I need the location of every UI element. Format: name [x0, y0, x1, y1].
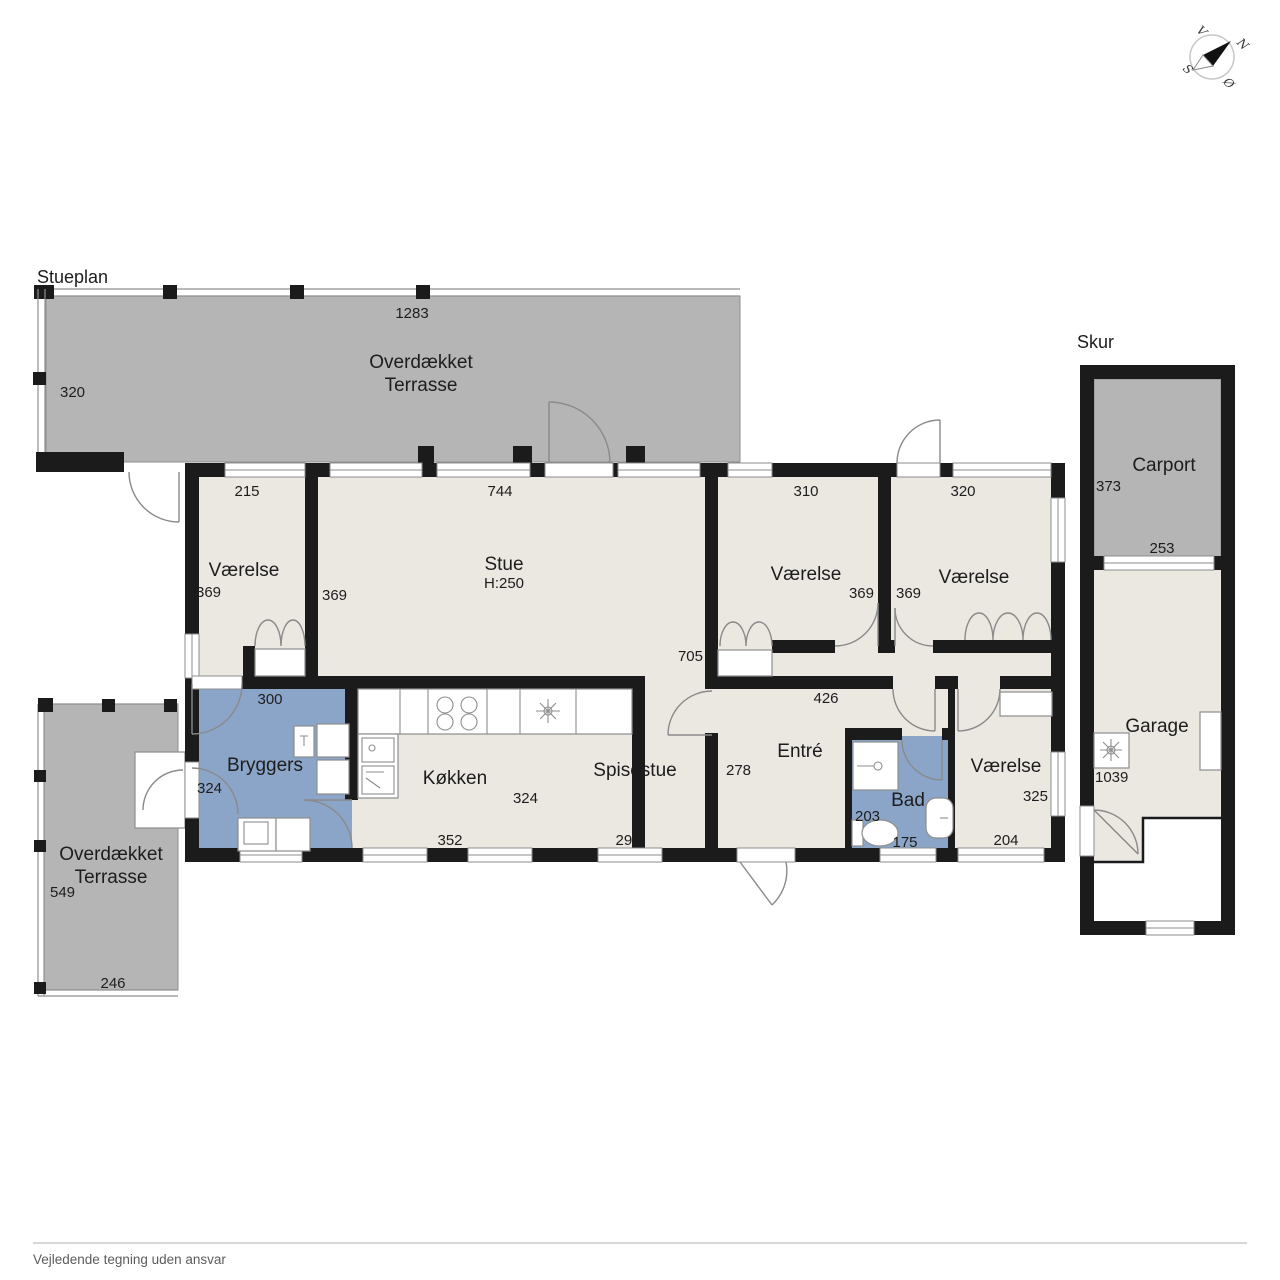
bad-label: Bad	[891, 790, 925, 811]
shower-icon	[853, 742, 898, 790]
vaerelse-nw-dim-top: 215	[234, 483, 259, 500]
vaerelse-n1-dim-top: 310	[793, 483, 818, 500]
terrace-sw-dim-bottom: 246	[100, 975, 125, 992]
bryggers-dim-top: 300	[257, 691, 282, 708]
vaerelse-n2-dim-left: 369	[896, 585, 921, 602]
entre-dim-top: 426	[813, 690, 838, 707]
vaerelse-se-dim-bottom: 204	[993, 832, 1018, 849]
closet-vaerelse-se	[1000, 692, 1052, 716]
garage-label: Garage	[1125, 716, 1188, 737]
terrace-sw-label-1: Overdækket	[59, 844, 163, 865]
vaerelse-nw-dim-left: 369	[196, 584, 221, 601]
koekken-dim-bottom: 352	[437, 832, 462, 849]
terrace-porch-recess	[135, 752, 185, 828]
bryggers-label: Bryggers	[227, 755, 303, 776]
outbuilding-skur: Carport 373 253 Garage 1039	[1080, 365, 1235, 935]
spisestue-label: Spisestue	[593, 760, 676, 781]
carport-dim-left: 373	[1096, 478, 1121, 495]
terrace-sw: Overdækket Terrasse 549 246	[34, 698, 185, 996]
stue-dim-depth: 705	[678, 648, 703, 665]
stue-label: Stue	[484, 554, 523, 575]
terrace-top-dim-top: 1283	[395, 305, 428, 322]
vaerelse-n2-dim-top: 320	[950, 483, 975, 500]
worktop-icon	[276, 818, 310, 851]
entre-label: Entré	[777, 741, 822, 762]
floorplan-drawing: 1283 320 Overdækket Terrasse Overdækket …	[0, 0, 1280, 1280]
spisestue-dim-right: 278	[726, 762, 751, 779]
koekken-label: Køkken	[423, 768, 487, 789]
stue-dim-left: 369	[322, 587, 347, 604]
terrace-top-label-2: Terrasse	[385, 375, 458, 396]
vaerelse-se-dim-right: 325	[1023, 788, 1048, 805]
stue-ceiling-height: H:250	[484, 575, 524, 592]
outbuilding-title: Skur	[1077, 332, 1114, 352]
compass-s: S	[1180, 61, 1196, 77]
vaerelse-nw-label: Værelse	[209, 560, 280, 581]
carport-dim-bottom: 253	[1149, 540, 1174, 557]
main-house: Værelse 215 369 Stue H:250 744 369 705 V…	[185, 402, 1065, 905]
footer-disclaimer: Vejledende tegning uden ansvar	[33, 1252, 226, 1267]
floorplan-page: 1283 320 Overdækket Terrasse Overdækket …	[0, 0, 1280, 1280]
garage-open-area	[1143, 818, 1221, 921]
dryer-icon	[317, 760, 349, 794]
vaerelse-n1-label: Værelse	[771, 564, 842, 585]
bad-dim-bottom: 175	[892, 834, 917, 851]
garage-fan-icon	[1094, 733, 1129, 768]
vaerelse-n2-label: Værelse	[939, 567, 1010, 588]
compass-rose: N Ø S V	[1180, 23, 1252, 92]
garage-dim-left: 1039	[1095, 769, 1128, 786]
washer-icon	[317, 724, 349, 757]
koekken-dim-right: 324	[513, 790, 538, 807]
bryggers-dim-left: 324	[197, 780, 222, 797]
terrace-sw-label-2: Terrasse	[75, 867, 148, 888]
bathroom-sink-icon	[926, 798, 953, 838]
compass-n: N	[1233, 35, 1251, 53]
vaerelse-n1-dim-right: 369	[849, 585, 874, 602]
stue-dim-top: 744	[487, 483, 512, 500]
terrace-top-label-1: Overdækket	[369, 352, 473, 373]
bad-dim-left: 203	[855, 808, 880, 825]
terrace-sw-dim-left: 549	[50, 884, 75, 901]
vaerelse-se-label: Værelse	[971, 756, 1042, 777]
plan-title: Stueplan	[37, 267, 108, 287]
terrace-top-dim-left: 320	[60, 384, 85, 401]
carport-label: Carport	[1132, 455, 1196, 476]
garage-cabinet	[1200, 712, 1221, 770]
spisestue-dim-bottom: 296	[615, 832, 640, 849]
